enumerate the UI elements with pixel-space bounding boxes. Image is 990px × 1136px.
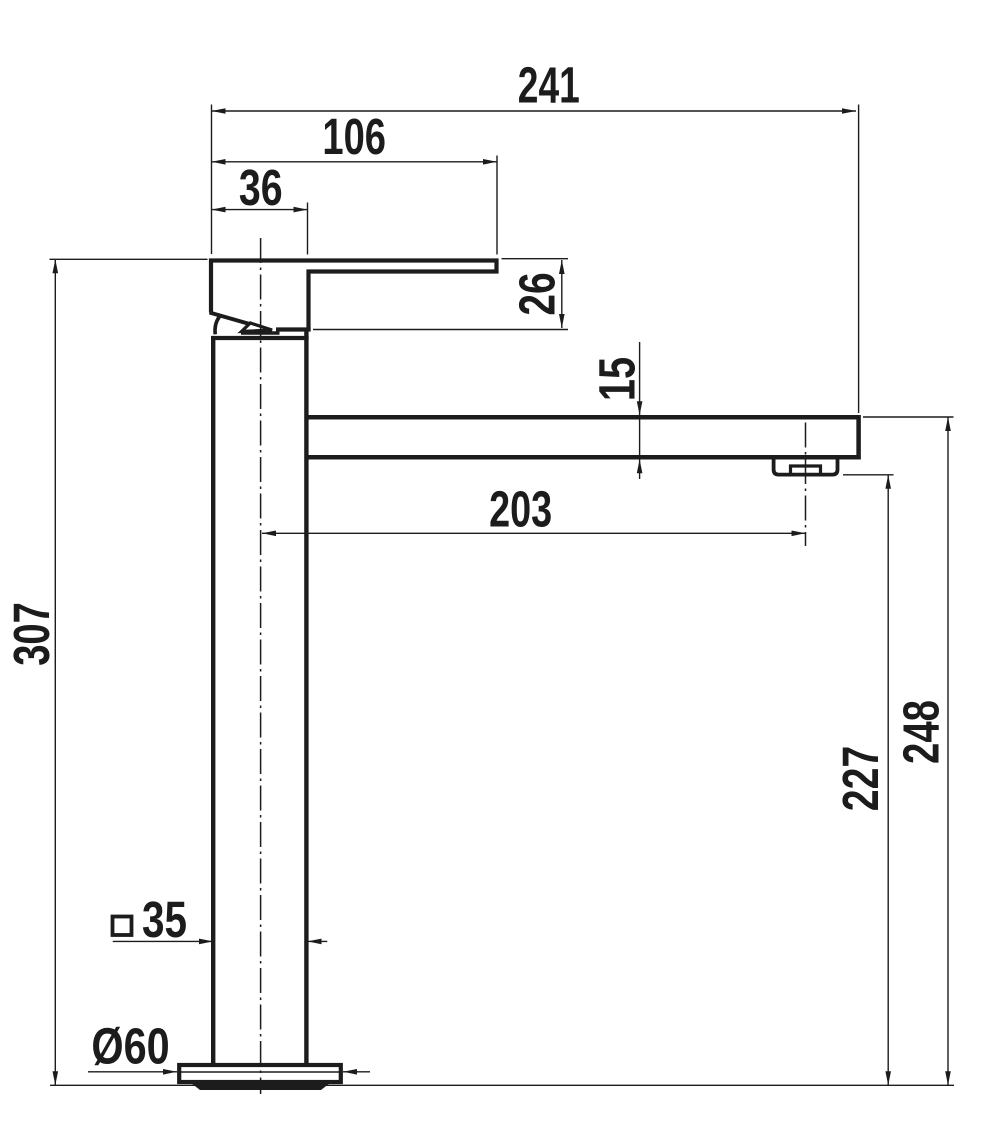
svg-text:Ø60: Ø60 — [91, 1017, 169, 1074]
svg-text:15: 15 — [589, 357, 646, 401]
svg-text:307: 307 — [3, 602, 60, 666]
svg-text:203: 203 — [489, 481, 552, 538]
svg-text:227: 227 — [832, 746, 889, 812]
svg-text:106: 106 — [322, 108, 386, 165]
svg-text:36: 36 — [239, 159, 283, 216]
svg-text:248: 248 — [892, 700, 949, 764]
svg-text:35: 35 — [142, 891, 187, 948]
svg-text:241: 241 — [518, 57, 580, 114]
svg-text:26: 26 — [508, 272, 565, 315]
